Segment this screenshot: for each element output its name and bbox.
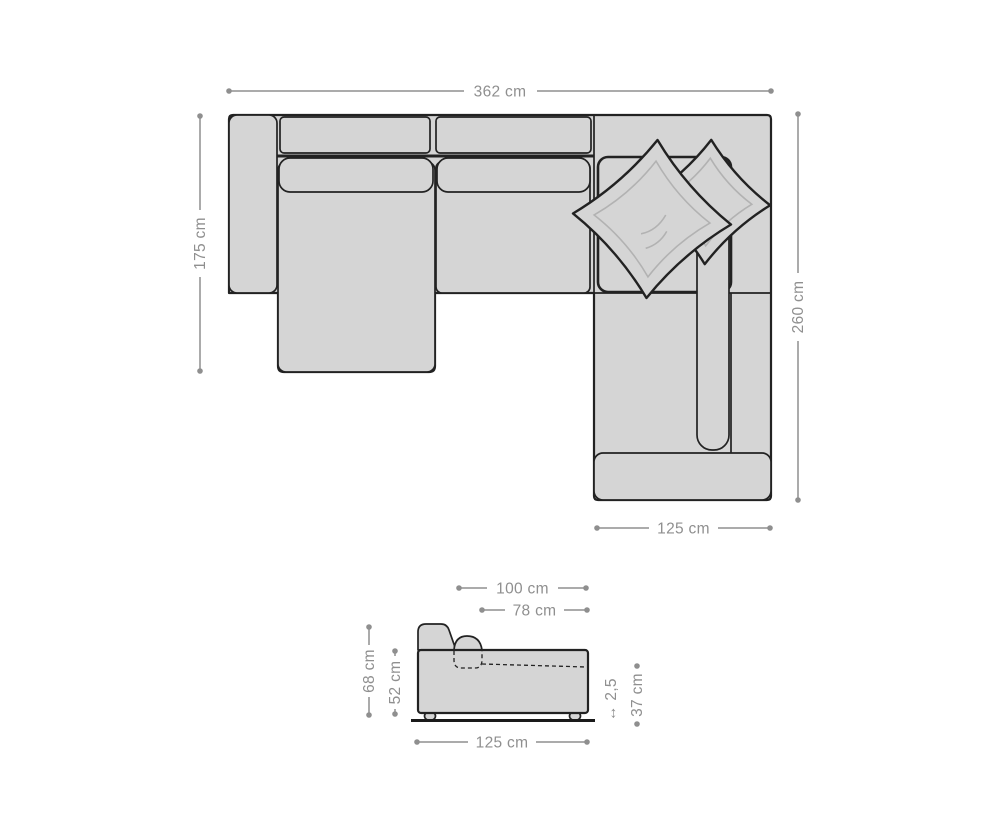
dim-endpoint [479,607,485,613]
side-body [418,650,588,713]
body-height-label: 52 cm [387,661,404,705]
right-armrest [594,453,771,500]
dimension-seat-depth: 78 cm [479,603,590,620]
right-depth-label: 260 cm [790,281,807,334]
sofa-side-view [411,624,595,721]
sofa-dimensions-diagram: 362 cm 175 cm 260 cm 125 cm [0,0,1000,833]
side-seat-roll [454,636,482,650]
dim-endpoint [584,607,590,613]
back-height-label: 68 cm [361,649,378,693]
dim-endpoint [392,711,398,717]
dim-endpoint [795,111,801,117]
dim-endpoint [456,585,462,591]
wing-width-label: 125 cm [657,521,710,538]
dimension-total-width: 362 cm [226,84,774,101]
seat-depth-label: 78 cm [513,603,557,620]
sofa-dimension-diagram-page: 362 cm 175 cm 260 cm 125 cm [0,0,1000,833]
seat-cushion-left [279,158,433,192]
dimension-upper-width: 100 cm [456,581,589,598]
dim-endpoint [634,721,640,727]
dim-endpoint [392,648,398,654]
dim-endpoint [584,739,590,745]
side-backrest [418,624,456,650]
dimension-total-depth: 125 cm [414,735,590,752]
seat-cushion-middle [437,158,590,192]
total-depth-label: 125 cm [476,735,529,752]
dimension-left-depth: 175 cm [192,113,209,374]
dimension-wing-width: 125 cm [594,521,773,538]
dim-endpoint [366,712,372,718]
dim-endpoint [795,497,801,503]
dim-endpoint [197,368,203,374]
dim-endpoint [583,585,589,591]
dim-endpoint [768,88,774,94]
dimension-base-thickness: ↔ 2,5 [603,678,620,721]
dimension-right-depth: 260 cm [790,111,807,503]
upper-width-label: 100 cm [496,581,549,598]
ground-clearance-label: 37 cm [629,673,646,717]
dim-endpoint [226,88,232,94]
dim-endpoint [414,739,420,745]
dim-endpoint [767,525,773,531]
backrest-cushion-left [280,117,430,153]
left-depth-label: 175 cm [192,217,209,270]
total-width-label: 362 cm [474,84,527,101]
dim-endpoint [594,525,600,531]
dimension-ground-clearance: 37 cm [629,663,646,727]
backrest-cushion-middle [436,117,591,153]
dim-endpoint [197,113,203,119]
dim-endpoint [366,624,372,630]
dim-endpoint [634,663,640,669]
sofa-top-view [229,115,771,500]
chaise-module [278,162,435,372]
dimension-body-height: 52 cm [387,648,404,717]
dimension-back-height: 68 cm [361,624,378,718]
left-armrest [229,115,277,293]
base-thickness-label: ↔ 2,5 [603,678,620,721]
